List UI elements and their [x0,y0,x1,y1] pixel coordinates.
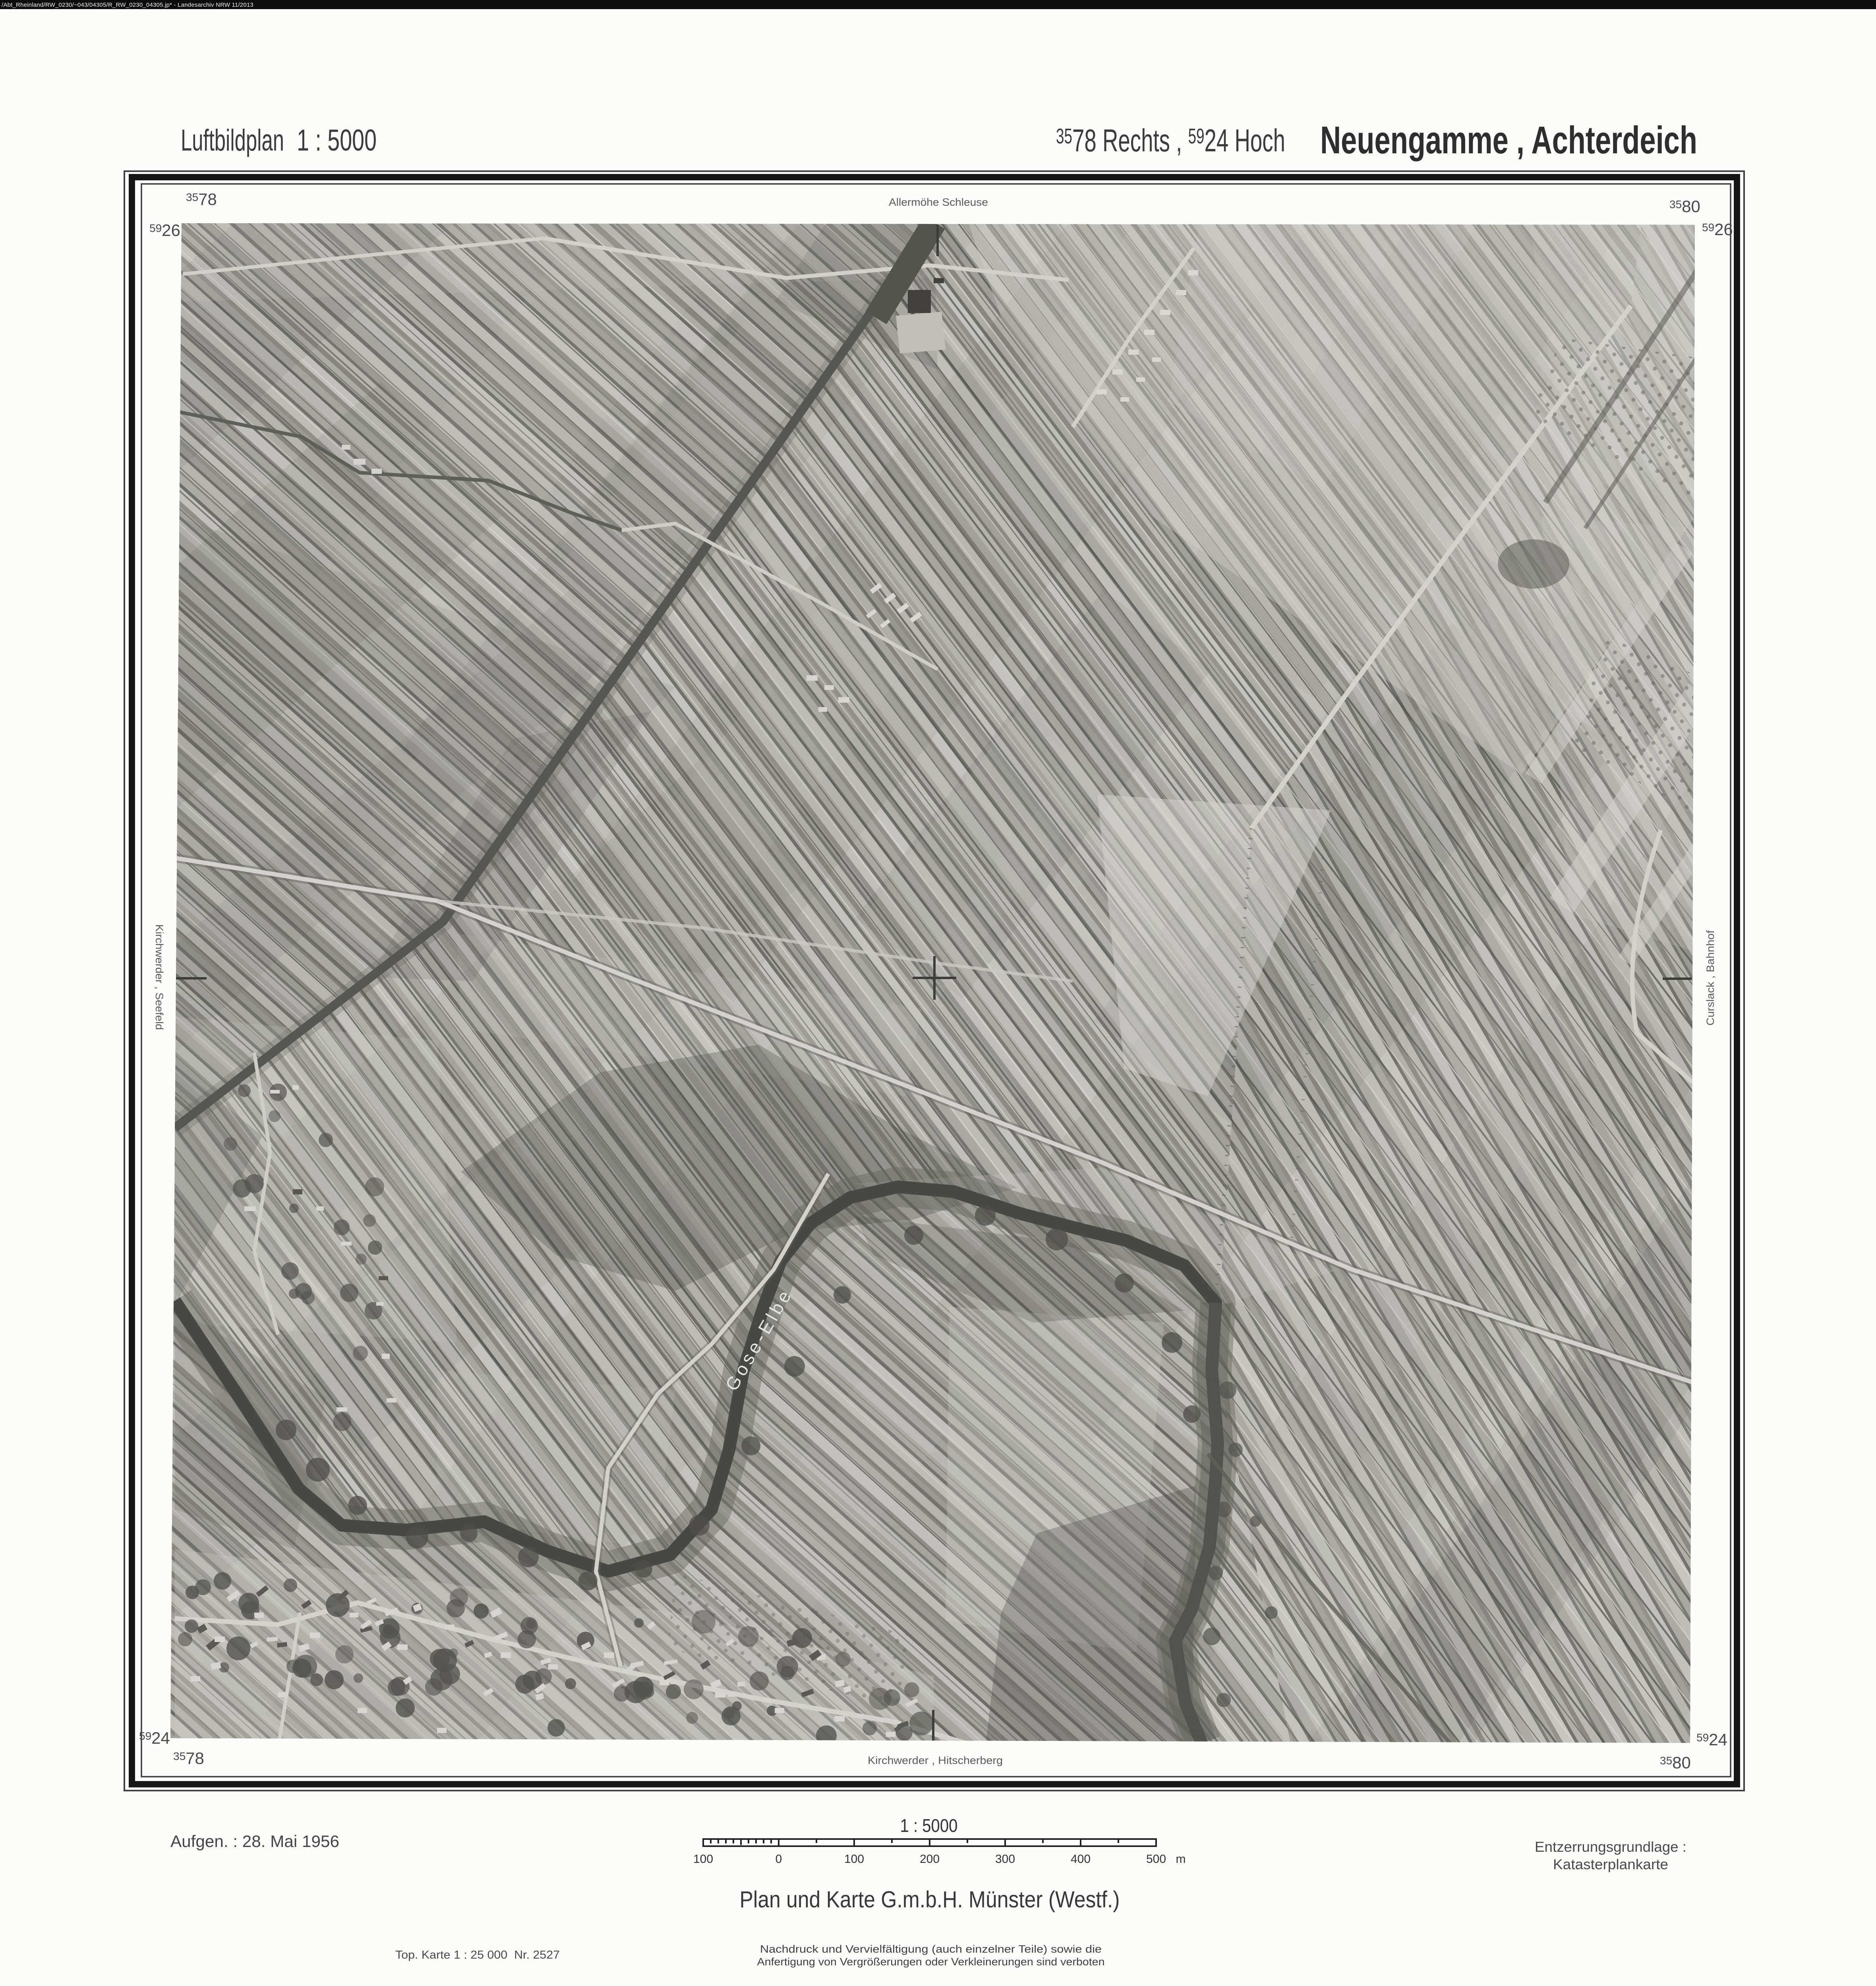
svg-text:100: 100 [693,1853,713,1866]
svg-text:Entzerrungsgrundlage :: Entzerrungsgrundlage : [1535,1839,1686,1855]
svg-text:300: 300 [995,1853,1015,1866]
svg-text:Nachdruck und Vervielfältigung: Nachdruck und Vervielfältigung (auch ein… [760,1943,1102,1955]
svg-text:Allermöhe Schleuse: Allermöhe Schleuse [889,196,988,208]
svg-text:0: 0 [776,1853,782,1866]
svg-text:Top. Karte 1 : 25 000 Nr. 252: Top. Karte 1 : 25 000 Nr. 2527 [395,1949,560,1961]
svg-text:Plan und Karte G.m.b.H. Münste: Plan und Karte G.m.b.H. Münster (Westf.) [740,1887,1120,1913]
svg-text:200: 200 [920,1853,940,1866]
svg-text:Anfertigung von Vergrößerungen: Anfertigung von Vergrößerungen oder Verk… [757,1956,1105,1968]
svg-text:500: 500 [1146,1853,1166,1866]
svg-text:1 : 5000: 1 : 5000 [297,124,377,157]
svg-text:Kirchwerder , Hitscherberg: Kirchwerder , Hitscherberg [868,1754,1003,1766]
svg-text:3578 Rechts , 5924 Hoch: 3578 Rechts , 5924 Hoch [1056,123,1285,158]
svg-text:Kirchwerder , Seefeld: Kirchwerder , Seefeld [153,924,165,1030]
svg-text:100: 100 [844,1853,864,1866]
svg-text:Curslack , Bahnhof: Curslack , Bahnhof [1704,930,1716,1026]
svg-text:1 : 5000: 1 : 5000 [900,1815,958,1836]
svg-text:400: 400 [1071,1853,1091,1866]
svg-text:Aufgen. : 28. Mai 1956: Aufgen. : 28. Mai 1956 [170,1832,339,1851]
svg-text:/Abt_Rheinland/RW_0230/~043/04: /Abt_Rheinland/RW_0230/~043/04305/R_RW_0… [2,2,253,8]
svg-text:Katasterplankarte: Katasterplankarte [1553,1856,1668,1872]
svg-text:Neuengamme , Achterdeich: Neuengamme , Achterdeich [1320,118,1697,162]
svg-text:Luftbildplan: Luftbildplan [181,124,284,157]
svg-text:m: m [1176,1853,1186,1866]
